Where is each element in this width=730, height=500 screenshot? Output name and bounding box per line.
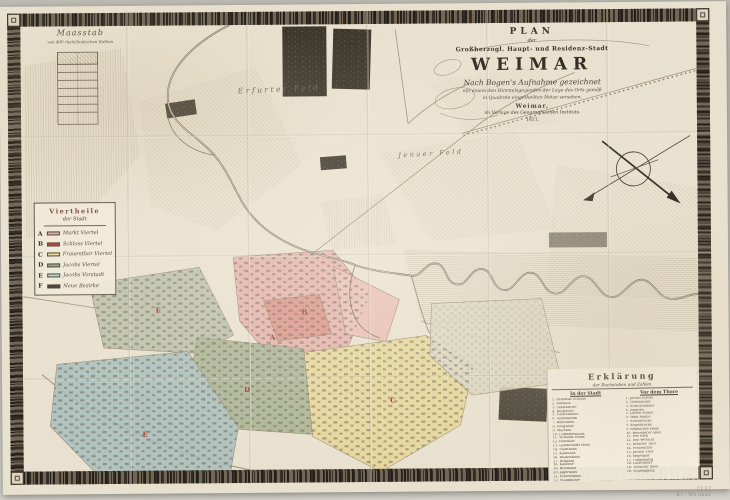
legend-item-label: Jacobs Vorstadt bbox=[63, 272, 104, 278]
legend-item: B Schloss Viertel bbox=[38, 240, 112, 248]
legend-color-swatch bbox=[47, 284, 60, 288]
legend-color-swatch bbox=[47, 252, 60, 256]
legend-title: Viertheile bbox=[38, 207, 112, 216]
index-subtitle: der Buchstaben und Zahlen bbox=[552, 381, 693, 391]
legend-item-letter: C bbox=[38, 251, 44, 258]
legend-item-label: Frauenthor Viertel bbox=[63, 251, 112, 257]
legend-color-swatch bbox=[47, 242, 60, 246]
border-corner-ornament bbox=[7, 14, 20, 27]
legend-item-label: Jacobs Viertel bbox=[63, 262, 100, 268]
legend-divider bbox=[44, 225, 106, 226]
legend-subtitle: der Stadt bbox=[38, 216, 112, 223]
index-column-suburbs: Vor dem Thore 1. Jacobs Kirche2. Gottesa… bbox=[625, 390, 694, 482]
legend-item: F Neue Bezirke bbox=[38, 282, 112, 290]
index-column-city: In der Stadt 1. Residenz Schloss2. Ratha… bbox=[552, 391, 621, 481]
border-corner-ornament bbox=[11, 472, 24, 485]
index-entry: 20. Schiessplatz bbox=[627, 469, 695, 474]
legend-item: E Jacobs Vorstadt bbox=[38, 271, 112, 279]
legend-item: C Frauenthor Viertel bbox=[38, 250, 112, 258]
border-corner-ornament bbox=[700, 466, 713, 479]
legend-color-swatch bbox=[47, 273, 60, 277]
legend-item-letter: A bbox=[38, 230, 44, 237]
legend-color-swatch bbox=[47, 263, 60, 267]
border-corner-ornament bbox=[696, 8, 709, 21]
legend-item-label: Neue Bezirke bbox=[63, 283, 99, 289]
legend-item-label: Schloss Viertel bbox=[63, 241, 102, 247]
index-panel: Erklärung der Buchstaben und Zahlen In d… bbox=[546, 367, 698, 482]
legend-color-swatch bbox=[47, 231, 60, 235]
legend-panel: Viertheile der Stadt A Markt Viertel B S… bbox=[34, 202, 117, 296]
legend-item-letter: B bbox=[38, 241, 44, 248]
photograph-of-map: PLAN der Großherzogl. Haupt- und Residen… bbox=[0, 0, 730, 500]
legend-item-label: Markt Viertel bbox=[63, 230, 98, 236]
legend-item: D Jacobs Viertel bbox=[38, 261, 112, 269]
stamp-caption: Kt. Weimar bbox=[677, 493, 713, 499]
map-sheet: PLAN der Großherzogl. Haupt- und Residen… bbox=[0, 1, 730, 495]
legend-item-letter: E bbox=[38, 272, 44, 279]
legend-item-letter: D bbox=[38, 262, 44, 269]
legend-item: A Markt Viertel bbox=[38, 229, 112, 237]
legend-item-letter: F bbox=[38, 283, 44, 290]
